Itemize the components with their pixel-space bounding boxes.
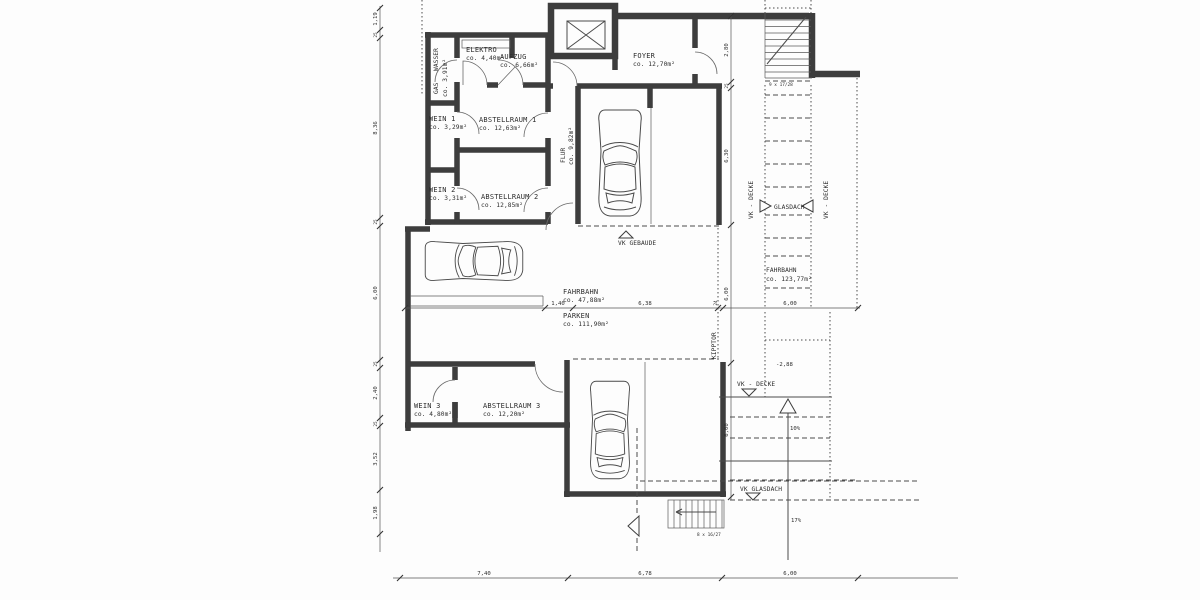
room-label-flur: FLUR bbox=[560, 148, 567, 163]
glasdach-label: GLASDACH bbox=[774, 204, 805, 211]
dim-left-2: 8,36 bbox=[373, 121, 379, 134]
elevator-symbol bbox=[567, 21, 605, 49]
room-area-foyer: co. 12,70m² bbox=[633, 61, 675, 68]
dim-left-7: 25 bbox=[373, 421, 379, 427]
room-area-abstellraum3: co. 12,20m² bbox=[483, 411, 525, 418]
dim-bottom-0: 7,40 bbox=[477, 571, 490, 577]
room-label-foyer: FOYER bbox=[633, 52, 656, 60]
room-label-abstellraum1: ABSTELLRAUM 1 bbox=[479, 116, 536, 124]
dimension-right-chain: 2,80 25 6,30 6,00 6,00 bbox=[724, 13, 734, 500]
dim-right-3: 6,00 bbox=[724, 287, 730, 300]
dim-right-4: 6,00 bbox=[724, 423, 730, 436]
room-area-wein2: co. 3,31m² bbox=[429, 195, 467, 202]
slope-arrow-head bbox=[780, 399, 796, 413]
room-area-fahrbahn-rampe: co. 123,77m² bbox=[766, 276, 812, 283]
room-label-wein1: WEIN 1 bbox=[429, 115, 456, 123]
vk-decke-right-label: VK - DECKE bbox=[823, 181, 830, 219]
slope-lower-label: 17% bbox=[791, 518, 802, 524]
dim-middle-2: 24 bbox=[713, 300, 719, 306]
staircase-bottom bbox=[668, 500, 724, 528]
marker-triangles bbox=[619, 200, 813, 536]
dim-right-2: 6,30 bbox=[724, 149, 730, 162]
room-area-fahrbahn: co. 47,88m² bbox=[563, 297, 605, 304]
dim-left-0: 1,19 bbox=[373, 12, 379, 25]
floorplan-sheet: WASSER GAS co. 3,91m² ELEKTRO co. 4,40m²… bbox=[0, 0, 1200, 600]
room-area-flur: co. 9,82m² bbox=[568, 127, 575, 165]
room-area-gas: co. 3,91m² bbox=[442, 59, 449, 97]
car-top-garage bbox=[599, 110, 642, 216]
dim-left-4: 6,00 bbox=[373, 286, 379, 299]
vk-gebaeude-label: VK GEBAUDE bbox=[618, 240, 656, 247]
dimension-left-chain: 1,19 25 8,36 25 6,00 25 2,40 25 3,52 1,9… bbox=[373, 5, 383, 552]
room-area-aufzug: co. 6,66m² bbox=[500, 62, 538, 69]
vk-decke-bottom-label: VK - DECKE bbox=[737, 381, 775, 388]
stairs-top-note: 9 x 17/28 bbox=[769, 82, 793, 88]
dim-right-0: 2,80 bbox=[724, 43, 730, 56]
room-area-wein3: co. 4,80m² bbox=[414, 411, 452, 418]
dim-left-1: 25 bbox=[373, 32, 379, 38]
room-label-fahrbahn-rampe: FAHRBAHN bbox=[766, 267, 797, 274]
floorplan-drawing: WASSER GAS co. 3,91m² ELEKTRO co. 4,40m²… bbox=[0, 0, 1200, 600]
vk-glasdach-triangle bbox=[746, 493, 760, 500]
room-label-parken: PARKEN bbox=[563, 312, 590, 320]
vk-decke-left-label: VK - DECKE bbox=[748, 181, 755, 219]
room-label-wasser: WASSER bbox=[433, 48, 440, 71]
room-label-wein3: WEIN 3 bbox=[414, 402, 441, 410]
room-label-elektro: ELEKTRO bbox=[466, 46, 497, 54]
ramp-treads-upper bbox=[765, 95, 811, 288]
dim-middle-0: 1,40 bbox=[551, 301, 564, 307]
room-area-elektro: co. 4,40m² bbox=[466, 55, 504, 62]
car-parking bbox=[425, 241, 523, 280]
kipptor-label: KIPPTOR bbox=[711, 332, 718, 359]
car-bottom-garage bbox=[590, 381, 629, 479]
doors bbox=[433, 52, 717, 402]
dim-left-6: 2,40 bbox=[373, 386, 379, 399]
dim-left-9: 1,98 bbox=[373, 506, 379, 520]
room-label-fahrbahn: FAHRBAHN bbox=[563, 288, 598, 296]
dimension-middle-chain: 1,40 6,38 24 6,00 bbox=[402, 300, 861, 311]
staircase-top bbox=[765, 13, 812, 81]
room-label-gas: GAS bbox=[433, 82, 440, 94]
dim-middle-3: 6,00 bbox=[783, 301, 796, 307]
stairs-bottom-note: 8 x 16/27 bbox=[697, 532, 721, 538]
dim-bottom-2: 6,00 bbox=[783, 571, 796, 577]
ramp-direction-triangle bbox=[628, 516, 639, 536]
slope-upper-label: 10% bbox=[790, 426, 801, 432]
dim-middle-1: 6,38 bbox=[638, 301, 652, 307]
room-label-abstellraum2: ABSTELLRAUM 2 bbox=[481, 193, 538, 201]
room-area-abstellraum1: co. 12,63m² bbox=[479, 125, 521, 132]
room-label-aufzug: AUFZUG bbox=[500, 53, 527, 61]
dimension-bottom-chain: 7,40 6,78 6,00 bbox=[393, 571, 958, 581]
vk-glasdach-label: VK GLASDACH bbox=[740, 486, 782, 493]
level-label: -2,88 bbox=[776, 362, 793, 368]
dim-left-8: 3,52 bbox=[373, 452, 379, 465]
vk-gebaeude-triangle bbox=[619, 231, 633, 238]
room-area-parken: co. 111,90m² bbox=[563, 321, 609, 328]
dim-left-5: 25 bbox=[373, 361, 379, 367]
room-area-wein1: co. 3,29m² bbox=[429, 124, 467, 131]
vk-decke-triangle bbox=[742, 389, 756, 396]
dim-left-3: 25 bbox=[373, 219, 379, 225]
dim-right-1: 25 bbox=[724, 83, 730, 89]
room-label-abstellraum3: ABSTELLRAUM 3 bbox=[483, 402, 540, 410]
dim-bottom-1: 6,78 bbox=[638, 571, 652, 577]
room-area-abstellraum2: co. 12,85m² bbox=[481, 202, 523, 209]
room-label-wein2: WEIN 2 bbox=[429, 186, 456, 194]
